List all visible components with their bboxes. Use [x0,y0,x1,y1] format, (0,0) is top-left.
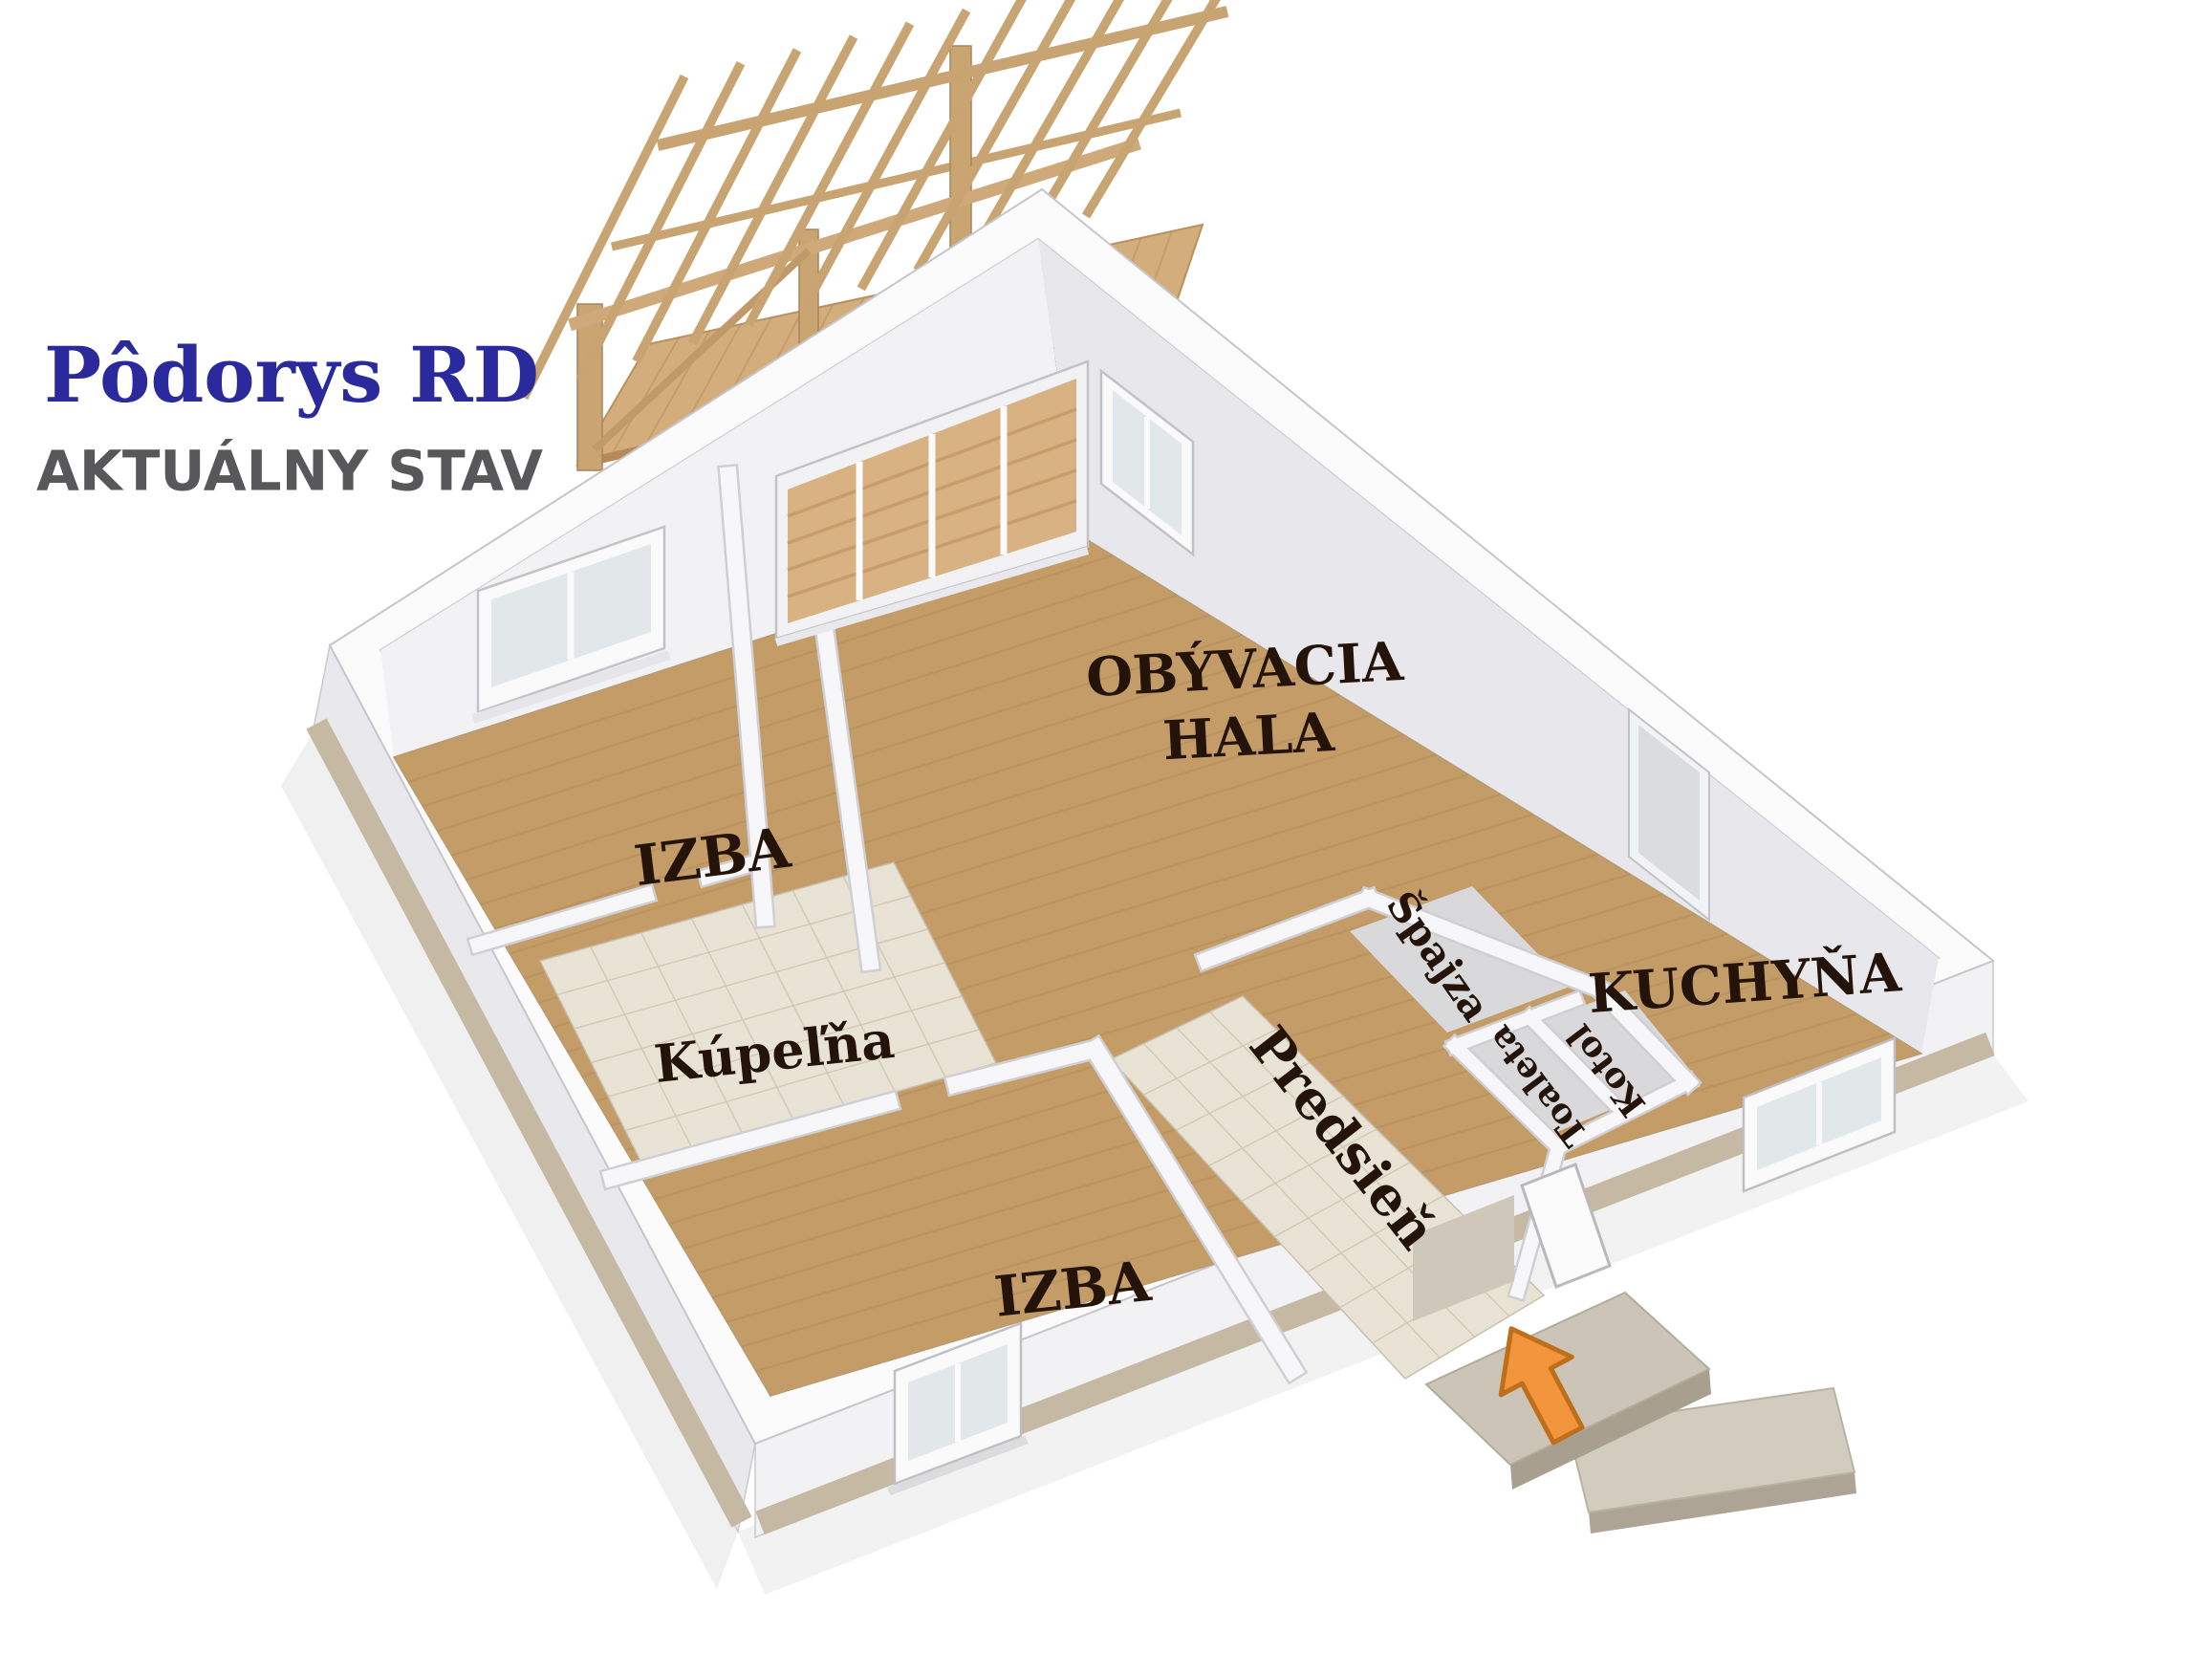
main-title: Pôdorys RD [44,330,539,420]
subtitle: AKTUÁLNY STAV [36,437,543,503]
room-label-hala-line2: HALA [1161,701,1337,772]
titles: Pôdorys RD AKTUÁLNY STAV [36,330,543,503]
pergola-rafter [748,24,910,325]
pergola-rafter [1086,0,1248,216]
floor-plan-svg: Krytá terasa [0,0,2212,1653]
pergola-rafter [692,37,854,343]
floor-plan-image: Krytá terasa [0,0,2212,1653]
entrance-area [1426,1293,1856,1533]
house: IZBA OBÝVACIA HALA Kúpeľňa IZBA KUCHYŇA … [313,189,1993,1537]
